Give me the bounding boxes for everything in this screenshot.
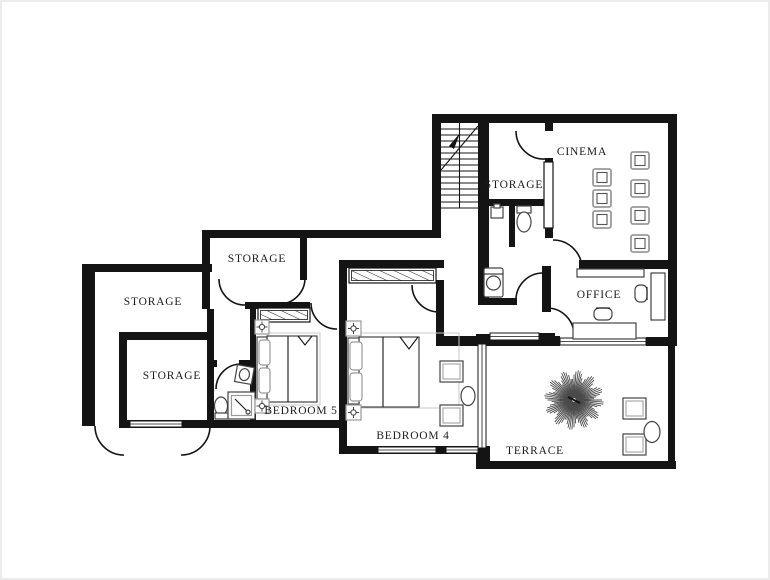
washing-machine-icon — [484, 268, 503, 297]
room-label-bedroom-4: BEDROOM 4 — [376, 430, 449, 442]
table-icon — [440, 405, 463, 426]
table-icon — [440, 361, 463, 382]
cabinet-icon — [651, 273, 665, 320]
window — [490, 333, 539, 340]
chair-icon — [461, 387, 475, 406]
room-label-storage-left: STORAGE — [124, 296, 182, 308]
room-label-terrace: TERRACE — [506, 445, 564, 457]
cinema-seat-icon — [631, 207, 649, 224]
toilet-icon — [517, 206, 531, 232]
desk-icon — [573, 323, 636, 339]
floor-plan-canvas: CINEMA STORAGE OFFICE TERRACE BEDROOM 4 … — [0, 0, 770, 580]
office-chair-icon — [635, 285, 647, 302]
room-label-office: OFFICE — [577, 289, 621, 301]
room-label-storage-upper: STORAGE — [485, 179, 543, 191]
cinema-screen — [544, 162, 553, 228]
cinema-seat-icon — [631, 235, 649, 252]
cinema-seat-icon — [593, 211, 611, 228]
office-chair-icon — [594, 308, 612, 320]
table-icon — [623, 434, 646, 455]
shower-icon — [228, 392, 255, 419]
room-label-storage-bottom-left: STORAGE — [143, 370, 201, 382]
room-label-cinema: CINEMA — [557, 146, 607, 158]
room-label-bedroom-5: BEDROOM 5 — [264, 405, 337, 417]
cinema-seat-icon — [631, 180, 649, 197]
window — [378, 447, 436, 453]
shelf-icon — [577, 269, 644, 277]
cinema-seat-icon — [593, 169, 611, 186]
nightstand-icon — [346, 405, 361, 420]
floor-plan-drawing: CINEMA STORAGE OFFICE TERRACE BEDROOM 4 … — [2, 2, 770, 580]
cinema-seat-icon — [593, 190, 611, 207]
nightstand-icon — [346, 321, 361, 336]
sink-icon — [235, 365, 255, 385]
nightstand-icon — [255, 320, 269, 334]
room-label-storage-middle: STORAGE — [228, 253, 286, 265]
window — [446, 447, 478, 453]
closet-icon — [349, 268, 436, 283]
window-glass-wall — [478, 344, 486, 448]
table-icon — [623, 398, 646, 419]
cinema-seat-icon — [631, 152, 649, 169]
chair-icon — [644, 422, 660, 443]
toilet-icon — [215, 397, 229, 419]
window — [130, 421, 182, 427]
